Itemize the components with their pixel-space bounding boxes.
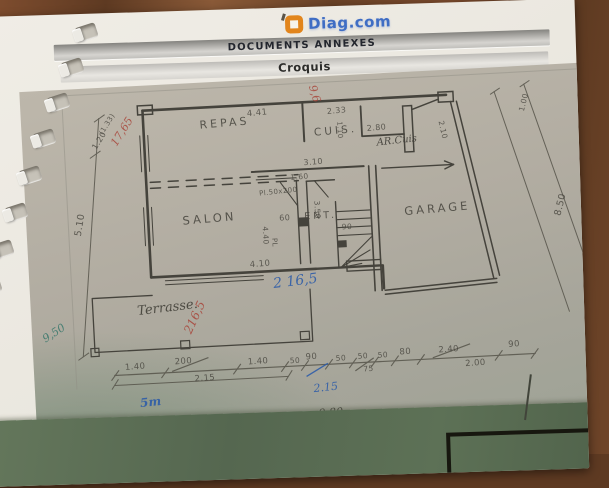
dim-2-33: 2.33 xyxy=(327,105,347,116)
chain-1-40-b: 1.40 xyxy=(248,356,269,367)
documents-annexes-label: DOCUMENTS ANNEXES xyxy=(227,37,376,53)
idiag-logo-text: Diag.com xyxy=(308,12,392,33)
chain-200: 200 xyxy=(174,356,192,367)
chain-2-00: 2.00 xyxy=(465,358,486,369)
chain-50-a: 50 xyxy=(290,356,301,366)
dim-1-10: 1.10 xyxy=(335,121,344,139)
chain-50-c: 50 xyxy=(357,351,368,361)
croquis-label: Croquis xyxy=(278,59,331,75)
dim-1-60: 1.60 xyxy=(290,171,309,182)
plan-annotations: REPASCUIS.AR.CuisSALONENT.GARAGETerrasse… xyxy=(41,62,589,458)
document-page: Diag.com DOCUMENTS ANNEXES Croquis xyxy=(0,0,589,487)
dim-3-50: 3.50 xyxy=(312,200,322,219)
chain-90-a: 90 xyxy=(305,352,317,363)
hand-2-15-blue: 2.15 xyxy=(313,380,339,395)
chain-50-b: 50 xyxy=(335,353,346,363)
hand-5m: 5m xyxy=(139,394,161,410)
chain-1-40-a: 1.40 xyxy=(125,362,146,373)
photo-of-bound-document: { "header": { "logo": { "text": "Diag.co… xyxy=(0,0,609,454)
dim-90-stairs: 90 xyxy=(342,222,353,232)
dim-4-40: 4.40 xyxy=(261,226,271,245)
dim-60: 60 xyxy=(279,213,290,223)
chain-2-15: 2.15 xyxy=(194,373,215,384)
partial-drawing-frame xyxy=(446,427,589,487)
chain-80: 80 xyxy=(399,347,411,358)
dim-2-80: 2.80 xyxy=(366,122,386,133)
idiag-logo: Diag.com xyxy=(285,12,391,33)
dim-4-41: 4.41 xyxy=(247,107,268,119)
dim-pl: PL xyxy=(270,238,278,247)
idiag-logo-icon xyxy=(285,15,304,34)
chain-2-40: 2.40 xyxy=(438,344,459,355)
chain-75: 75 xyxy=(363,364,374,374)
dim-4-10: 4.10 xyxy=(249,259,270,271)
dim-3-10: 3.10 xyxy=(303,157,323,168)
chain-90-b: 90 xyxy=(508,339,520,350)
chain-50-d: 50 xyxy=(377,350,388,360)
floorplan-scan: REPASCUIS.AR.CuisSALONENT.GARAGETerrasse… xyxy=(19,62,589,464)
